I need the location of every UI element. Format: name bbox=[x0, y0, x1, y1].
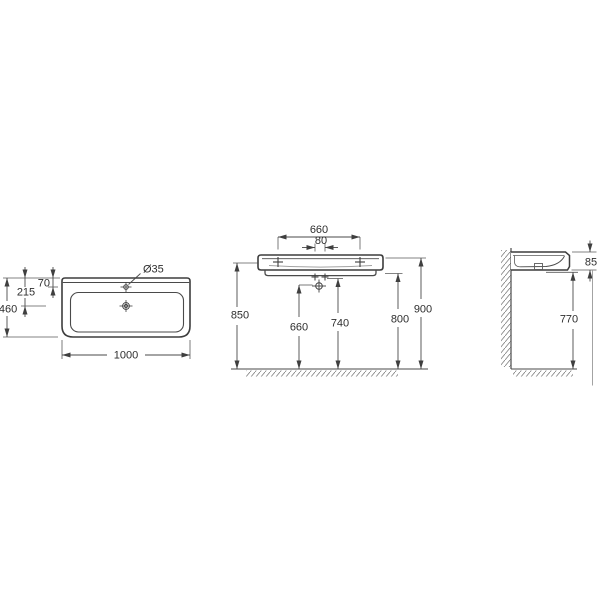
depth-label: 460 bbox=[0, 304, 17, 316]
dim-rim-thickness: 85 bbox=[572, 241, 598, 282]
technical-drawing-page: Ø35 460 215 70 bbox=[0, 0, 600, 600]
wall-hatch bbox=[501, 250, 511, 367]
height-trap-label: 660 bbox=[290, 322, 308, 334]
side-view: 85 770 bbox=[501, 241, 597, 386]
drain-offset-label: 215 bbox=[17, 287, 35, 299]
tap-offset-label: 70 bbox=[38, 278, 50, 290]
dim-height-underside: 800 bbox=[385, 274, 409, 370]
rim-thickness-label: 85 bbox=[585, 257, 597, 269]
bolt-hole-mark-right bbox=[322, 274, 329, 281]
bolt-spacing-label: 80 bbox=[315, 235, 327, 247]
dim-tap-offset: 70 bbox=[38, 267, 58, 298]
width-label: 1000 bbox=[114, 350, 138, 362]
height-clearance-label: 770 bbox=[560, 314, 578, 326]
height-rim-label: 900 bbox=[414, 304, 432, 316]
bolt-hole-mark-left bbox=[312, 274, 319, 281]
height-bolts-label: 740 bbox=[331, 318, 349, 330]
apron-outline bbox=[265, 270, 376, 276]
dim-drain-offset: 215 bbox=[17, 267, 46, 317]
height-underside-label: 800 bbox=[391, 314, 409, 326]
washbasin-technical-drawing: Ø35 460 215 70 bbox=[0, 0, 600, 600]
tap-diameter-label: Ø35 bbox=[143, 264, 164, 276]
floor-hatch bbox=[246, 371, 398, 377]
floor-hatch-side bbox=[513, 371, 573, 377]
trap-crosshair-mark bbox=[312, 280, 326, 293]
dim-height-trap: 660 bbox=[290, 285, 313, 369]
height-fixing-label: 850 bbox=[231, 310, 249, 322]
front-view: 660 80 850 660 740 bbox=[231, 224, 432, 377]
dim-height-clearance: 770 bbox=[546, 272, 578, 369]
dim-height-fixing: 850 bbox=[231, 263, 258, 369]
dim-bolt-spacing: 80 bbox=[302, 235, 338, 252]
top-view: Ø35 460 215 70 bbox=[0, 264, 190, 362]
dim-overall-width: 1000 bbox=[62, 340, 190, 362]
dim-height-bolts: 740 bbox=[327, 279, 349, 370]
